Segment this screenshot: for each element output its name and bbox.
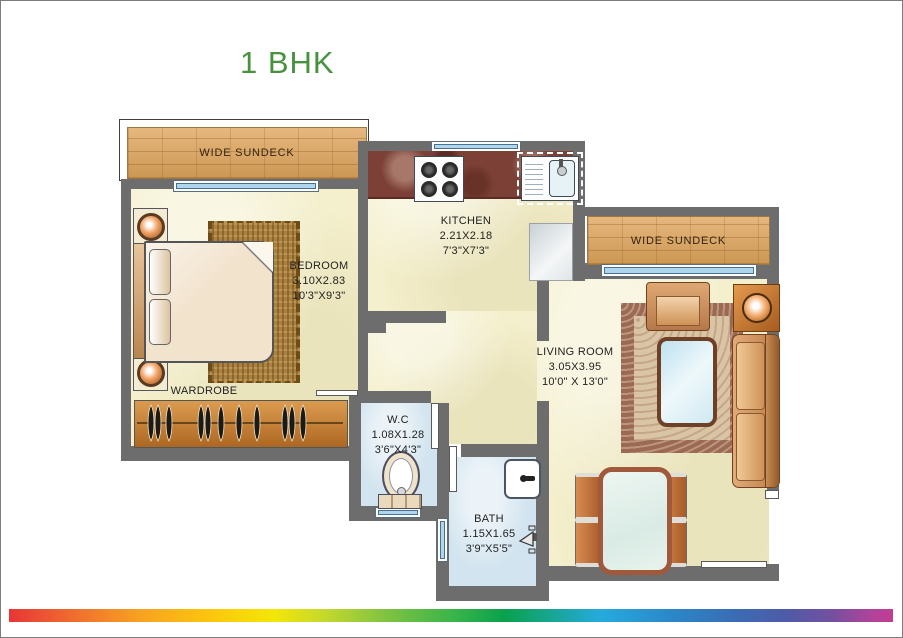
floor-plan-page: 1 BHK WIDE SUNDECK WIDE SUNDECK	[0, 0, 903, 638]
washbasin-icon	[504, 459, 541, 499]
bedroom-window	[173, 180, 319, 192]
window-pane	[434, 144, 518, 149]
room-name: WARDROBE	[149, 384, 259, 399]
bath-bottom-wall	[436, 586, 549, 601]
room-name: LIVING ROOM	[527, 345, 623, 360]
sundeck-left: WIDE SUNDECK	[127, 127, 367, 179]
lamp-icon	[742, 293, 772, 323]
rainbow-gradient-bar	[9, 609, 893, 622]
room-dim-m: 1.08X1.28	[357, 428, 439, 443]
room-dim-m: 2.21X2.18	[414, 229, 518, 244]
kitchen-left-wall	[358, 141, 368, 189]
burner-icon	[421, 181, 437, 197]
wc-label: W.C 1.08X1.28 3'6"X4'3"	[357, 413, 439, 458]
bedsheet-fold	[243, 242, 273, 272]
sofa-cushion	[736, 413, 765, 481]
nightstand	[133, 208, 168, 245]
room-name: KITCHEN	[414, 214, 518, 229]
kitchen-label: KITCHEN 2.21X2.18 7'3"X7'3"	[414, 214, 518, 259]
lamp-table	[733, 284, 780, 332]
room-dim-m: 3.05X3.95	[527, 360, 623, 375]
sink-basin	[549, 160, 575, 197]
room-name: W.C	[357, 413, 439, 428]
tap-icon	[525, 476, 535, 481]
armchair	[646, 282, 710, 331]
wardrobe-label: WARDROBE	[149, 384, 259, 399]
sink-drainboard	[525, 160, 543, 197]
kitchen-bottom-wall	[358, 311, 446, 323]
sink-body	[521, 156, 579, 201]
window-pane	[176, 183, 316, 189]
dining-table	[598, 467, 672, 575]
burner-icon	[442, 181, 458, 197]
burner-icon	[421, 162, 437, 178]
sundeck-right-label: WIDE SUNDECK	[631, 235, 726, 247]
bedroom-door	[316, 390, 358, 396]
faucet-icon	[559, 159, 563, 168]
room-dim-m: 1.15X1.65	[447, 527, 531, 542]
kitchen-door-jamb	[368, 323, 386, 333]
wardrobe	[134, 400, 348, 448]
room-dim-ft: 7'3"X7'3"	[414, 244, 518, 259]
living-left-wall-upper	[537, 279, 549, 341]
burner-icon	[442, 162, 458, 178]
sundeck-right: WIDE SUNDECK	[587, 216, 770, 265]
room-name: BEDROOM	[273, 259, 365, 274]
room-dim-ft: 10'0" X 13'0"	[527, 375, 623, 390]
armchair-seat	[656, 296, 700, 326]
window-pane	[440, 521, 445, 559]
room-dim-ft: 3'6"X4'3"	[357, 443, 439, 458]
kitchen-sink-icon	[517, 152, 583, 205]
toilet-tank	[378, 494, 422, 509]
bath-door	[449, 446, 457, 492]
living-room-window	[601, 264, 757, 277]
entrance-door-jamb	[765, 490, 779, 499]
wc-top-wall	[349, 391, 431, 403]
living-room-label: LIVING ROOM 3.05X3.95 10'0" X 13'0"	[527, 345, 623, 390]
sofa-back	[765, 335, 779, 487]
hanger-icons	[135, 401, 345, 445]
room-name: BATH	[447, 512, 531, 527]
sundeck-left-label: WIDE SUNDECK	[199, 147, 294, 159]
stove-icon	[414, 156, 464, 202]
window-pane	[604, 267, 754, 274]
room-dim-ft: 3'9"X5'5"	[447, 542, 531, 557]
sofa-cushion	[736, 342, 765, 410]
sofa	[732, 334, 780, 488]
entrance-door	[701, 561, 767, 568]
bedroom-label: BEDROOM 3.10X2.83 10'3"X9'3"	[273, 259, 365, 304]
window-pane	[378, 510, 418, 515]
pillow	[149, 299, 171, 345]
sundeck-right-top-wall	[585, 207, 779, 216]
kitchen-platform	[529, 223, 573, 281]
bath-label: BATH 1.15X1.65 3'9"X5'5"	[447, 512, 531, 557]
room-dim-ft: 10'3"X9'3"	[273, 289, 365, 304]
pillow	[149, 249, 171, 295]
page-title: 1 BHK	[240, 45, 335, 81]
lamp-icon	[137, 213, 165, 241]
coffee-table	[657, 337, 717, 427]
room-dim-m: 3.10X2.83	[273, 274, 365, 289]
living-left-wall-lower	[537, 401, 549, 446]
bedroom-left-wall	[121, 179, 131, 461]
